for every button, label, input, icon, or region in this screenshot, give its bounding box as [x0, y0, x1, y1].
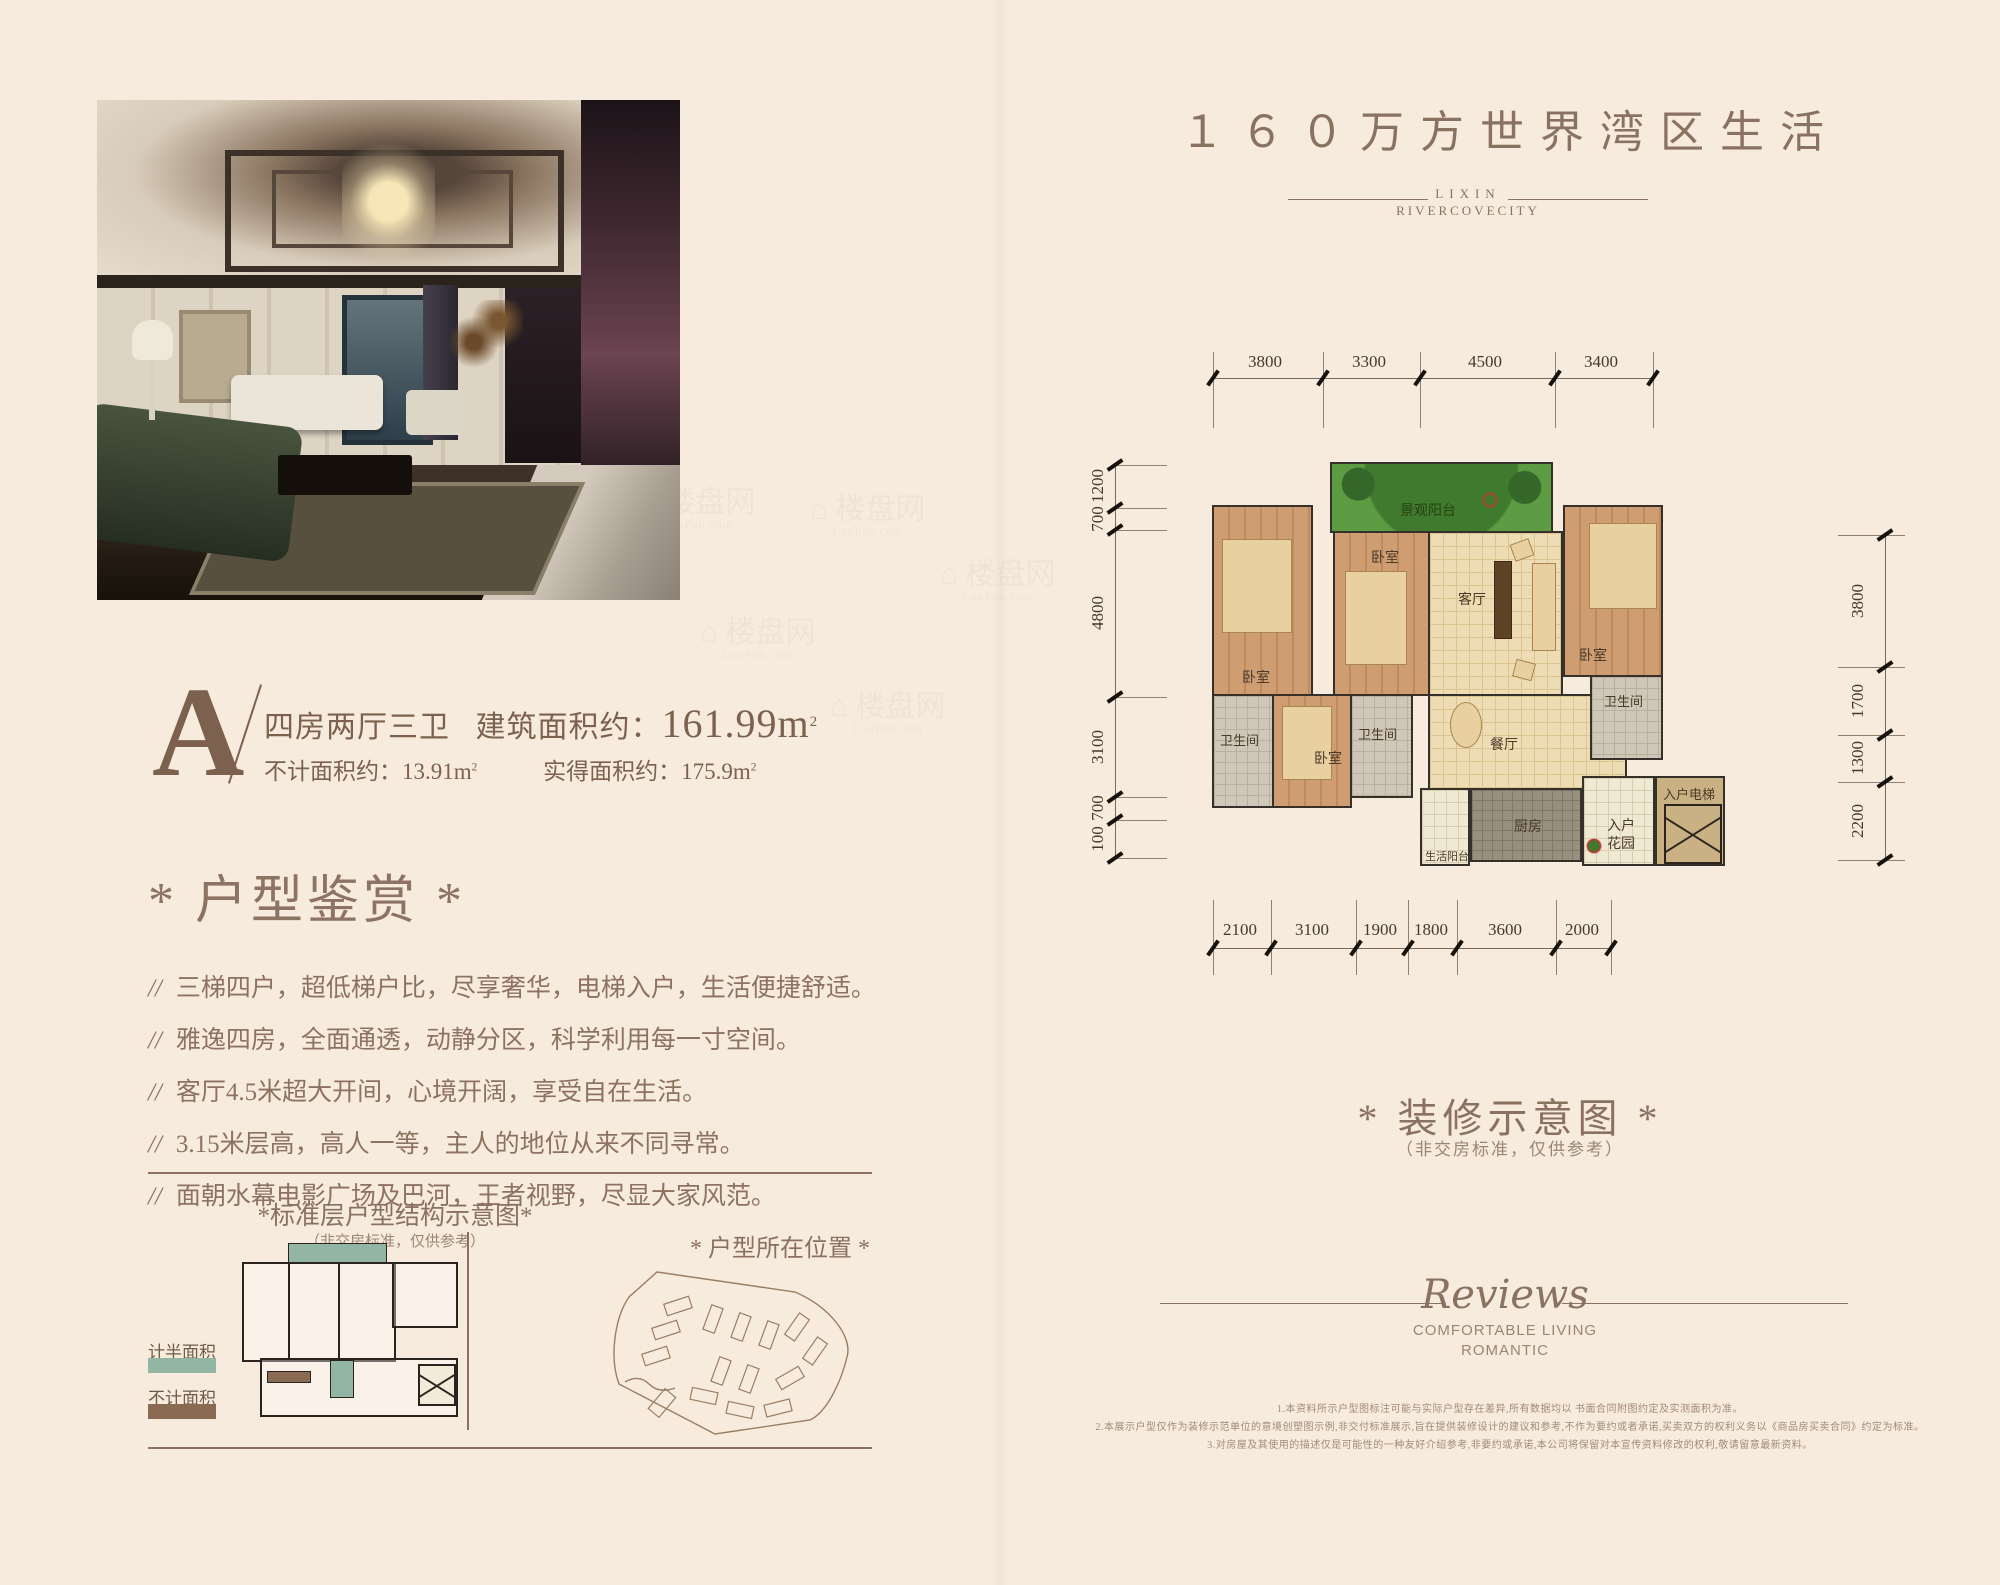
dim-value: 3600	[1488, 920, 1522, 940]
room-bedroom-small: 卧室	[1272, 694, 1352, 808]
dim-value: 3100	[1295, 920, 1329, 940]
dim-ext	[1271, 900, 1272, 975]
dim-ext	[1356, 900, 1357, 975]
room-bedroom-left: 卧室	[1212, 505, 1313, 696]
dim-ext	[1112, 508, 1167, 509]
dim-value: 1300	[1848, 741, 1868, 775]
dim-ext	[1555, 352, 1556, 428]
legend-swatch-half-area	[148, 1358, 216, 1373]
mini-wall	[288, 1262, 290, 1358]
dim-ext	[1213, 900, 1214, 975]
dim-ext	[1112, 820, 1167, 821]
photo-coffee-table	[278, 455, 412, 495]
bullet-marker: //	[148, 1183, 162, 1210]
appreciation-list: //三梯四户，超低梯户比，尽享奢华，电梯入户，生活便捷舒适。 //雅逸四房，全面…	[148, 968, 848, 1228]
sofa	[1532, 563, 1556, 651]
site-location-map	[595, 1262, 885, 1457]
tv-cabinet	[1494, 561, 1512, 639]
dim-line-top	[1213, 378, 1653, 379]
room-bedroom-mid: 卧室	[1333, 531, 1430, 696]
unit-type: 四房两厅三卫	[264, 711, 450, 744]
dim-ext	[1457, 900, 1458, 975]
dim-ext	[1112, 530, 1167, 531]
watermark: ⌂ 楼盘网LouPan.com	[810, 495, 926, 537]
watermark: ⌂ 楼盘网LouPan.com	[830, 692, 946, 734]
dim-value: 1200	[1088, 469, 1108, 503]
dim-ext	[1838, 535, 1905, 536]
photo-plant	[441, 300, 523, 370]
living-room-photo	[97, 100, 680, 600]
disclaimer-line: 3.对房屋及其使用的描述仅是可能性的一种友好介绍参考,非要约或承诺,本公司将保留…	[1010, 1436, 2000, 1451]
dim-value: 2100	[1223, 920, 1257, 940]
sub1-value: 13.91m	[402, 759, 472, 784]
room-bedroom-right: 卧室	[1563, 505, 1663, 677]
dim-value: 3400	[1584, 352, 1618, 372]
photo-armchair	[406, 390, 464, 435]
sub1-label: 不计面积约：	[264, 759, 402, 784]
structure-diagram	[242, 1243, 457, 1415]
dim-ext	[1112, 797, 1167, 798]
reviews-line2: ROMANTIC	[1295, 1342, 1715, 1359]
dim-ext	[1112, 697, 1167, 698]
disclaimer-line: 2.本展示户型仅作为装修示范单位的意境创塑图示例,非交付标准展示,旨在提供装修设…	[1010, 1418, 2000, 1433]
dim-value: 2000	[1565, 920, 1599, 940]
dim-ext	[1838, 782, 1905, 783]
bullet-marker: //	[148, 1079, 162, 1106]
disclaimer-line: 1.本资料所示户型图标注可能与实际户型存在差异,所有数据均以 书面合同附图约定及…	[1010, 1400, 2000, 1415]
chair	[1510, 538, 1535, 562]
room-life-balcony: 生活阳台	[1420, 788, 1470, 866]
decor-diagram-note: （非交房标准，仅供参考）	[1260, 1135, 1760, 1160]
page-title: １６０万方世界湾区生活	[1110, 96, 1910, 160]
bullet-marker: //	[148, 1131, 162, 1158]
dim-ext	[1213, 352, 1214, 428]
list-item: //客厅4.5米超大开间，心境开阔，享受自在生活。	[148, 1072, 848, 1108]
dim-ext	[1112, 858, 1167, 859]
sub2-value: 175.9m	[681, 759, 751, 784]
mini-wall	[338, 1262, 340, 1358]
dim-ext	[1653, 352, 1654, 428]
appreciation-title: * 户型鉴赏 *	[148, 858, 466, 933]
dim-ext	[1323, 352, 1324, 428]
sub2-label: 实得面积约：	[543, 759, 681, 784]
list-item: //雅逸四房，全面通透，动静分区，科学利用每一寸空间。	[148, 1020, 848, 1056]
room-living: 客厅	[1428, 531, 1563, 696]
entry-garden-plant	[1586, 838, 1602, 854]
balcony-table	[1482, 492, 1498, 508]
dim-ext	[1838, 667, 1905, 668]
reviews-script: Reviews	[1380, 1272, 1630, 1318]
dim-line-right	[1885, 535, 1886, 860]
elevator-shaft	[1664, 804, 1722, 864]
photo-glass-wall	[581, 100, 680, 485]
dim-ext	[1556, 900, 1557, 975]
dim-ext	[1838, 860, 1905, 861]
area-label: 建筑面积约：	[476, 711, 662, 744]
dim-ext	[1420, 352, 1421, 428]
dim-ext	[1611, 900, 1612, 975]
room-landscape-balcony: 景观阳台	[1330, 462, 1553, 533]
dim-value: 4500	[1468, 352, 1502, 372]
bed	[1282, 706, 1332, 780]
dim-ext	[1112, 465, 1167, 466]
photo-lamp	[132, 320, 173, 360]
divider-vertical	[467, 1232, 469, 1430]
dim-value: 700	[1088, 506, 1108, 532]
location-title: * 户型所在位置 *	[690, 1228, 870, 1263]
room-entry-garden: 入户花园	[1582, 776, 1655, 866]
mini-half-area-patch	[330, 1360, 354, 1398]
mini-balcony	[288, 1243, 387, 1264]
dim-ext	[1408, 900, 1409, 975]
list-item: //3.15米层高，高人一等，主人的地位从来不同寻常。	[148, 1124, 848, 1160]
chandelier	[342, 130, 435, 260]
dim-value: 100	[1088, 826, 1108, 852]
divider	[148, 1447, 872, 1449]
structure-diagram-title: *标准层户型结构示意图*	[230, 1196, 560, 1232]
unit-summary: 四房两厅三卫 建筑面积约：161.99m2	[264, 700, 818, 747]
photo-lamp-stem	[149, 360, 155, 420]
dim-value: 3800	[1848, 584, 1868, 618]
room-bath-right: 卫生间	[1590, 675, 1663, 760]
page-fold	[993, 0, 1007, 1585]
mini-right-wing	[392, 1262, 458, 1328]
dim-value: 1900	[1363, 920, 1397, 940]
brand-subname: RIVERCOVECITY	[1268, 203, 1668, 219]
mini-main-block	[242, 1262, 396, 1362]
dim-value: 700	[1088, 795, 1108, 821]
bullet-marker: //	[148, 1027, 162, 1054]
area-sup: 2	[810, 714, 819, 730]
room-bath-left: 卫生间	[1212, 694, 1274, 808]
area-value: 161.99m	[662, 701, 810, 746]
watermark: ⌂ 楼盘网LouPan.com	[700, 618, 816, 660]
dim-value: 1700	[1848, 684, 1868, 718]
mini-elevator	[418, 1364, 456, 1406]
bed	[1345, 571, 1407, 665]
list-item: //三梯四户，超低梯户比，尽享奢华，电梯入户，生活便捷舒适。	[148, 968, 848, 1004]
chair	[1512, 659, 1536, 682]
reviews-line1: COMFORTABLE LIVING	[1295, 1322, 1715, 1339]
dim-ext	[1838, 735, 1905, 736]
dim-value: 4800	[1088, 596, 1108, 630]
mini-excluded-patch	[267, 1371, 311, 1383]
room-kitchen: 厨房	[1470, 788, 1582, 862]
bed	[1222, 539, 1292, 633]
bullet-marker: //	[148, 975, 162, 1002]
dim-value: 1800	[1414, 920, 1448, 940]
unit-subareas: 不计面积约：13.91m2 实得面积约：175.9m2	[264, 752, 757, 786]
brand-name: LIXIN	[1268, 186, 1668, 202]
dim-value: 3300	[1352, 352, 1386, 372]
legend-swatch-excluded-area	[148, 1404, 216, 1419]
dim-value: 3100	[1088, 730, 1108, 764]
photo-chaise	[97, 402, 303, 562]
dining-table	[1450, 702, 1482, 748]
bed	[1589, 523, 1657, 609]
dim-value: 2200	[1848, 804, 1868, 838]
divider	[148, 1172, 872, 1174]
dim-value: 3800	[1248, 352, 1282, 372]
room-elevator: 入户电梯	[1655, 776, 1725, 866]
room-bath-mid: 卫生间	[1350, 694, 1413, 798]
